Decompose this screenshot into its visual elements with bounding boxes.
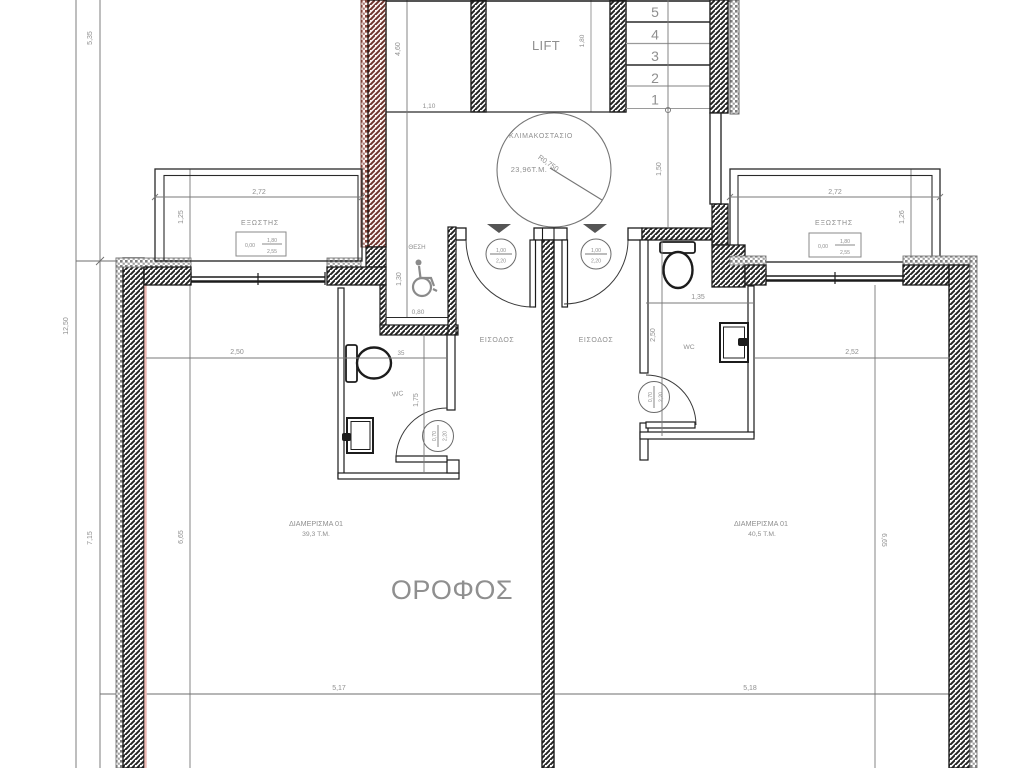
svg-text:2,20: 2,20	[496, 259, 506, 265]
svg-text:23,96Τ.Μ.: 23,96Τ.Μ.	[511, 165, 548, 174]
svg-text:LIFT: LIFT	[532, 38, 560, 53]
svg-text:35: 35	[398, 350, 405, 357]
svg-text:1,75: 1,75	[413, 393, 420, 407]
svg-text:ΕΙΣΟΔΟΣ: ΕΙΣΟΔΟΣ	[579, 337, 614, 344]
svg-text:1,30: 1,30	[396, 272, 403, 286]
svg-text:4,60: 4,60	[395, 42, 402, 56]
svg-text:0,00: 0,00	[818, 244, 828, 250]
svg-text:4: 4	[651, 27, 659, 43]
svg-text:5,17: 5,17	[332, 685, 346, 692]
svg-text:1,26: 1,26	[899, 210, 906, 224]
svg-text:2,72: 2,72	[828, 189, 842, 196]
svg-text:2,20: 2,20	[591, 259, 601, 265]
svg-text:39,3 Τ.Μ.: 39,3 Τ.Μ.	[302, 531, 330, 538]
svg-text:12,50: 12,50	[63, 317, 70, 335]
svg-text:1,80: 1,80	[840, 239, 850, 245]
svg-text:1,10: 1,10	[423, 103, 436, 110]
svg-text:2: 2	[651, 70, 659, 86]
svg-text:3: 3	[651, 48, 659, 64]
svg-text:40,5 Τ.Μ.: 40,5 Τ.Μ.	[748, 531, 776, 538]
svg-text:ΔΙΑΜΕΡΙΣΜΑ 01: ΔΙΑΜΕΡΙΣΜΑ 01	[289, 519, 343, 528]
svg-text:1,35: 1,35	[691, 294, 705, 301]
svg-text:2,50: 2,50	[650, 328, 657, 342]
svg-text:2,20: 2,20	[443, 431, 449, 441]
svg-text:1,80: 1,80	[267, 238, 277, 244]
svg-text:0,70: 0,70	[432, 431, 438, 441]
svg-text:5: 5	[651, 4, 659, 20]
svg-text:1,00: 1,00	[591, 248, 601, 254]
svg-text:0,00: 0,00	[245, 243, 255, 249]
svg-text:1,80: 1,80	[579, 34, 586, 47]
svg-text:6,65: 6,65	[178, 530, 185, 544]
svg-text:2,20: 2,20	[659, 392, 665, 402]
svg-text:ΘΕΣΗ: ΘΕΣΗ	[408, 244, 425, 251]
svg-text:ΕΞΩΣΤΗΣ: ΕΞΩΣΤΗΣ	[815, 220, 853, 227]
svg-text:ΔΙΑΜΕΡΙΣΜΑ 01: ΔΙΑΜΕΡΙΣΜΑ 01	[734, 519, 788, 528]
svg-text:5,18: 5,18	[743, 685, 757, 692]
svg-text:1,25: 1,25	[178, 210, 185, 224]
svg-text:ΕΙΣΟΔΟΣ: ΕΙΣΟΔΟΣ	[480, 337, 515, 344]
svg-text:WC: WC	[683, 344, 694, 351]
svg-text:2,72: 2,72	[252, 189, 266, 196]
svg-text:ΟΡΟΦΟΣ: ΟΡΟΦΟΣ	[391, 575, 513, 605]
svg-text:2,52: 2,52	[845, 349, 859, 356]
svg-text:0,70: 0,70	[648, 392, 654, 402]
svg-text:1: 1	[651, 92, 659, 108]
svg-text:5,35: 5,35	[87, 31, 94, 45]
svg-text:2,55: 2,55	[840, 250, 850, 256]
svg-text:7,15: 7,15	[87, 531, 94, 545]
svg-text:ΕΞΩΣΤΗΣ: ΕΞΩΣΤΗΣ	[241, 220, 279, 227]
svg-text:0,80: 0,80	[412, 309, 425, 316]
svg-text:1,50: 1,50	[656, 162, 663, 176]
svg-text:6,65: 6,65	[880, 533, 887, 547]
svg-text:1,00: 1,00	[496, 248, 506, 254]
svg-text:2,55: 2,55	[267, 249, 277, 255]
svg-text:2,50: 2,50	[230, 349, 244, 356]
svg-text:ΚΛΙΜΑΚΟΣΤΑΣΙΟ: ΚΛΙΜΑΚΟΣΤΑΣΙΟ	[509, 133, 573, 140]
